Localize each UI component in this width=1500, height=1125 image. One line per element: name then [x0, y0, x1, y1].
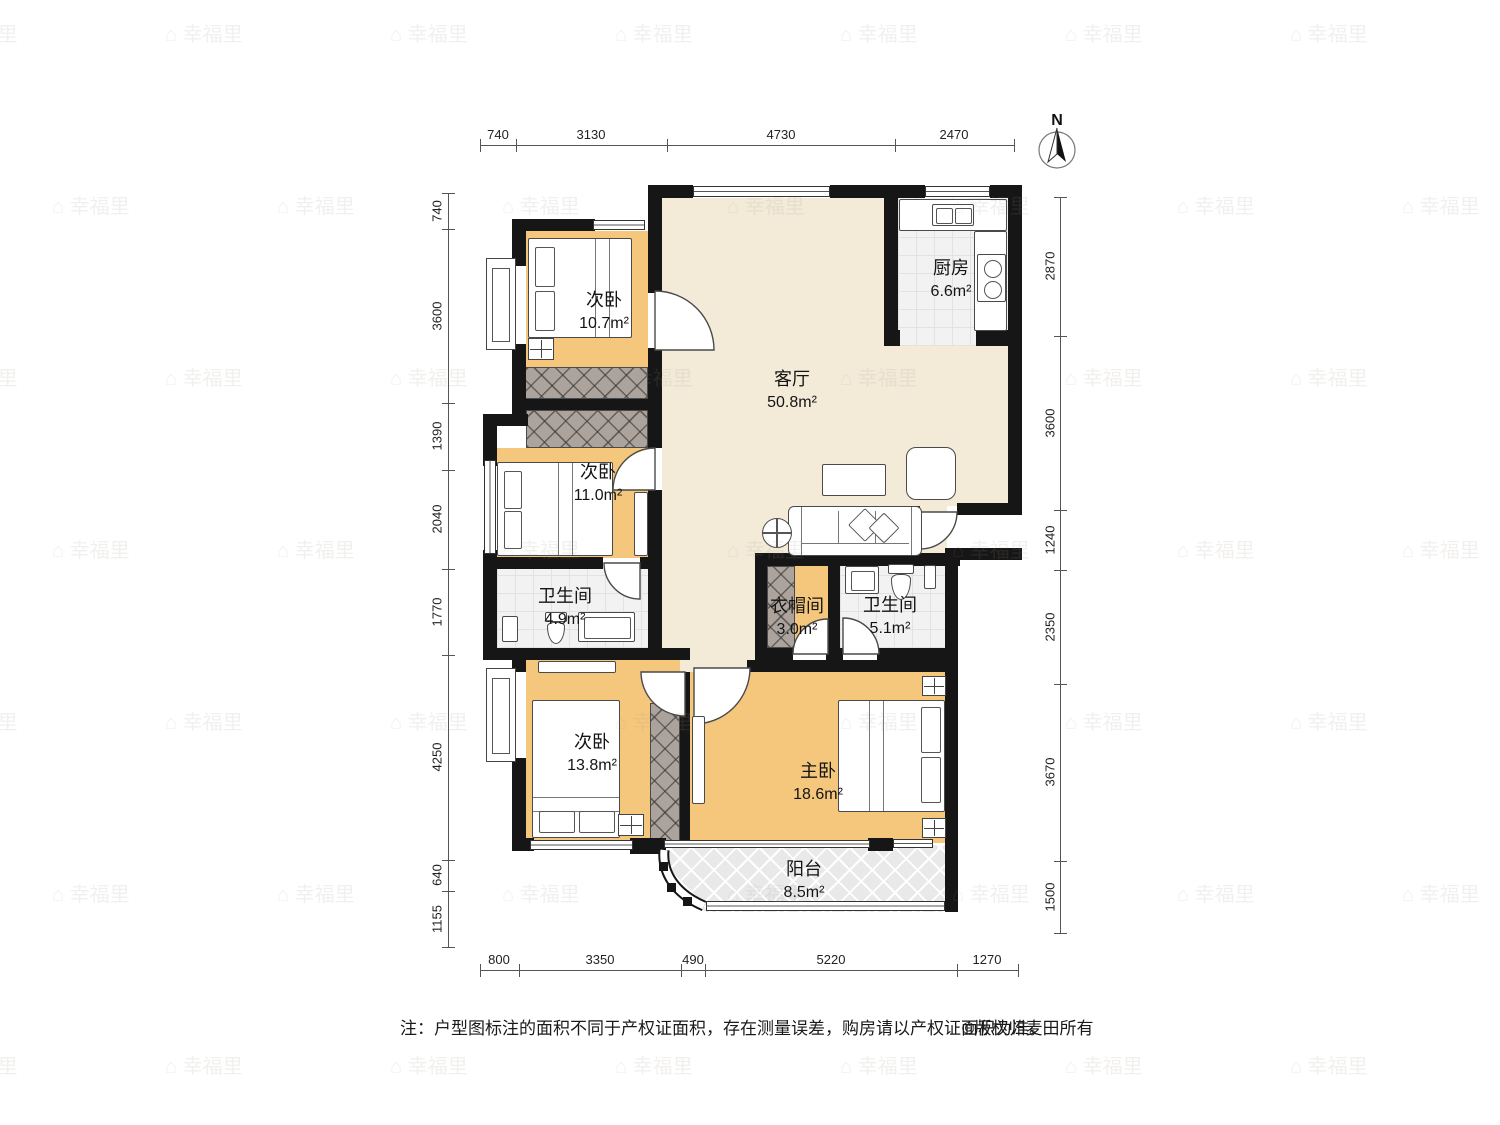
desk-icon	[634, 492, 648, 556]
wall	[1008, 185, 1022, 515]
window	[530, 840, 633, 850]
wall	[945, 548, 958, 912]
sink-icon	[845, 566, 879, 594]
dim-label: 3350	[586, 952, 615, 967]
dim-label: 800	[488, 952, 510, 967]
watermark: ⌂ 幸福里	[0, 362, 18, 391]
disclaimer-note: 注：户型图标注的面积不同于产权证面积，存在测量误差，购房请以产权证面积为准。	[400, 1014, 1046, 1039]
shower-icon	[924, 565, 936, 589]
dim-label: 640	[430, 864, 445, 886]
window	[925, 186, 990, 197]
dresser-icon	[538, 661, 616, 673]
bed-icon	[838, 700, 945, 812]
dim-label: 2040	[430, 505, 445, 534]
room-label-bedroom1: 次卧10.7m²	[579, 288, 629, 336]
wall	[512, 399, 662, 410]
toilet-icon	[888, 564, 914, 574]
watermark: ⌂ 幸福里	[1065, 362, 1143, 391]
balcony-glass	[706, 901, 945, 911]
wall	[483, 414, 528, 426]
wall	[648, 231, 662, 293]
radiator-icon	[528, 338, 554, 360]
watermark: ⌂ 幸福里	[390, 706, 468, 735]
watermark: ⌂ 幸福里	[1065, 18, 1143, 47]
room-label-closet: 衣帽间3.0m²	[770, 594, 824, 642]
wall	[957, 503, 1022, 515]
watermark: ⌂ 幸福里	[952, 878, 1030, 907]
watermark: ⌂ 幸福里	[1177, 534, 1255, 563]
room-label-living: 客厅50.8m²	[767, 367, 817, 415]
watermark: ⌂ 幸福里	[277, 190, 355, 219]
balcony-sliding-door	[664, 840, 870, 848]
copyright-note: ©版权归麦田所有	[962, 1014, 1094, 1039]
watermark: ⌂ 幸福里	[1065, 706, 1143, 735]
watermark: ⌂ 幸福里	[840, 1050, 918, 1079]
wardrobe-hatch	[650, 703, 680, 843]
watermark: ⌂ 幸福里	[52, 190, 130, 219]
watermark: ⌂ 幸福里	[52, 534, 130, 563]
cabinet-icon	[692, 716, 705, 804]
dim-label: 2870	[1043, 252, 1058, 281]
wall	[868, 838, 893, 851]
wall	[976, 330, 1008, 346]
dim-label: 3670	[1043, 758, 1058, 787]
wall	[648, 490, 662, 560]
dim-label: 2350	[1043, 613, 1058, 642]
window	[693, 186, 830, 197]
watermark: ⌂ 幸福里	[390, 362, 468, 391]
room-label-bedroom2: 次卧11.0m²	[574, 460, 623, 508]
side-table-icon	[762, 518, 792, 548]
wall	[648, 410, 662, 448]
armchair-icon	[906, 447, 956, 500]
dim-label: 1770	[430, 598, 445, 627]
wall	[512, 758, 526, 846]
watermark: ⌂ 幸福里	[165, 1050, 243, 1079]
watermark: ⌂ 幸福里	[1290, 1050, 1368, 1079]
dim-label: 1390	[430, 422, 445, 451]
watermark: ⌂ 幸福里	[1177, 878, 1255, 907]
wall	[828, 566, 840, 648]
north-label: N	[1051, 112, 1063, 130]
dimension-line-top	[480, 145, 1014, 146]
wall	[648, 569, 662, 660]
dim-label: 4250	[430, 743, 445, 772]
wall	[640, 557, 662, 569]
sofa-icon	[788, 506, 922, 556]
watermark: ⌂ 幸福里	[1402, 878, 1480, 907]
dimension-line-left	[448, 193, 449, 947]
dim-label: 1270	[973, 952, 1002, 967]
watermark: ⌂ 幸福里	[1290, 18, 1368, 47]
watermark: ⌂ 幸福里	[277, 534, 355, 563]
watermark: ⌂ 幸福里	[1402, 190, 1480, 219]
watermark: ⌂ 幸福里	[277, 878, 355, 907]
watermark: ⌂ 幸福里	[165, 706, 243, 735]
watermark: ⌂ 幸福里	[502, 190, 580, 219]
wall	[884, 198, 898, 346]
watermark: ⌂ 幸福里	[615, 18, 693, 47]
room-label-bath2: 卫生间5.1m²	[863, 593, 917, 641]
dim-label: 1240	[1043, 526, 1058, 555]
dim-label: 490	[682, 952, 704, 967]
wall	[648, 185, 662, 231]
radiator-icon	[922, 676, 946, 696]
watermark: ⌂ 幸福里	[0, 706, 18, 735]
watermark: ⌂ 幸福里	[502, 878, 580, 907]
dim-label: 1155	[430, 905, 445, 933]
room-label-bedroom3: 次卧13.8m²	[567, 730, 617, 778]
bay-window	[486, 258, 516, 350]
watermark: ⌂ 幸福里	[0, 18, 18, 47]
window	[893, 839, 933, 848]
watermark: ⌂ 幸福里	[840, 18, 918, 47]
watermark: ⌂ 幸福里	[52, 878, 130, 907]
dim-label: 4730	[767, 127, 796, 142]
wall	[826, 648, 843, 660]
dim-label: 3130	[577, 127, 606, 142]
dim-label: 3600	[430, 302, 445, 331]
watermark: ⌂ 幸福里	[390, 18, 468, 47]
wall	[483, 550, 497, 660]
mop-sink-icon	[502, 616, 518, 642]
floor-living	[662, 198, 884, 346]
dim-label: 740	[430, 200, 445, 222]
wall	[497, 557, 603, 569]
watermark: ⌂ 幸福里	[615, 1050, 693, 1079]
dim-label: 3600	[1043, 409, 1058, 438]
watermark: ⌂ 幸福里	[165, 362, 243, 391]
dimension-line-bottom	[480, 970, 1018, 971]
watermark: ⌂ 幸福里	[390, 1050, 468, 1079]
dimension-line-right	[1060, 197, 1061, 933]
coffee-table-icon	[822, 464, 886, 496]
watermark: ⌂ 幸福里	[1290, 706, 1368, 735]
watermark: ⌂ 幸福里	[1177, 190, 1255, 219]
wardrobe-hatch	[520, 367, 648, 399]
dim-label: 2470	[940, 127, 969, 142]
watermark: ⌂ 幸福里	[1290, 362, 1368, 391]
wall	[767, 648, 793, 660]
room-label-kitchen: 厨房6.6m²	[931, 256, 972, 304]
wall	[630, 838, 666, 854]
watermark: ⌂ 幸福里	[0, 1050, 18, 1079]
dim-label: 5220	[817, 952, 846, 967]
bay-window	[486, 668, 516, 762]
watermark: ⌂ 幸福里	[1065, 1050, 1143, 1079]
window	[484, 460, 496, 554]
stove-icon	[977, 254, 1006, 302]
wall	[884, 330, 900, 346]
kitchen-sink-icon	[932, 204, 974, 226]
dim-label: 1500	[1043, 883, 1058, 912]
radiator-icon	[922, 818, 946, 838]
wardrobe-hatch	[526, 410, 648, 448]
room-label-master: 主卧18.6m²	[793, 759, 843, 807]
floorplan-canvas: 次卧10.7m² 厨房6.6m² 客厅50.8m² 次卧11.0m² 卫生间4.…	[0, 0, 1500, 1125]
wall	[830, 185, 925, 198]
wall	[747, 660, 945, 672]
wall	[755, 566, 767, 672]
window	[593, 220, 645, 230]
dim-label: 740	[487, 127, 509, 142]
room-label-balcony: 阳台8.5m²	[784, 857, 825, 905]
watermark: ⌂ 幸福里	[165, 18, 243, 47]
room-label-bath1: 卫生间4.9m²	[538, 584, 592, 632]
watermark: ⌂ 幸福里	[1402, 534, 1480, 563]
radiator-icon	[618, 814, 644, 836]
wall	[680, 672, 690, 843]
